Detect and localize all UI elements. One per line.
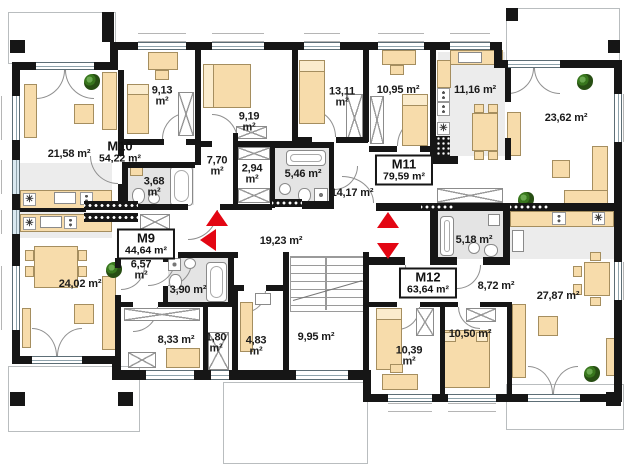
room-area-label: 14,17m² [331,187,374,199]
bathtub [286,150,326,166]
chair [573,266,582,277]
pillar [506,8,518,21]
room-area-label: 1,80m² [206,333,227,354]
wardrobe [416,308,434,336]
wall [115,258,121,268]
wardrobe [466,308,496,322]
balcony-top-left [8,12,116,64]
door-arc [528,366,553,394]
chair [488,151,498,160]
wall [201,141,212,147]
window [388,394,432,402]
coffee-table [552,160,570,178]
sink-icon [54,192,76,204]
wall [363,42,369,142]
door-arc [36,70,65,99]
terrace-door-m12 [528,394,580,402]
window-sill [623,94,634,142]
room-area-label: 6,57m² [131,260,152,281]
chair [474,104,484,113]
apartment-area: 63,64 m² [407,285,449,296]
wall [363,252,369,370]
entrance-glazed-door [296,370,348,380]
wardrobe [124,308,200,321]
apartment-label-m9: M9 44,64 m² [117,229,175,260]
wardrobe [128,352,156,368]
wall [121,302,133,307]
desk [148,52,178,70]
pillar [608,40,620,53]
window-sill [388,403,432,412]
kitchen-counter [437,60,451,88]
wall [369,146,397,152]
room-area-label: 5,18m² [456,234,493,246]
wall [138,204,188,210]
apartment-area: 54,22 m² [99,154,141,165]
window [146,370,194,380]
wall [302,201,334,209]
wall [430,156,458,164]
terrace-top-right [506,8,620,62]
window [614,94,622,142]
wardrobe [370,96,384,144]
door-arc [508,68,534,94]
pillar [10,392,25,406]
chair [25,250,34,261]
room-area-label: 5,46m² [285,168,322,180]
window [614,262,622,300]
window-sill [378,33,424,42]
stove-icon: ✳ [23,217,36,230]
window [211,370,229,380]
entrance-porch [223,382,368,464]
apartment-label-m12: M12 63,64 m² [399,268,457,299]
wardrobe [178,92,194,136]
sink-icon [512,230,524,252]
pillow [127,84,149,95]
apartment-label-m11: M11 79,59 m² [375,155,433,186]
plant-icon [84,74,100,90]
floor-plan: ✳ ✳ ✳ [0,0,634,473]
glass-block-wall [421,203,453,211]
window [212,42,264,50]
window-sill [138,33,186,42]
wall [208,302,234,307]
room-area-label: 21,58m² [48,148,91,160]
chair [474,151,484,160]
door-arc [32,328,57,356]
utility-box [255,293,271,305]
apartment-id: M10 [99,140,141,154]
pillar [10,40,25,53]
stove-icon: ✳ [437,122,450,135]
wall [232,285,238,370]
pillow [376,308,402,320]
apartment-id: M12 [407,271,449,285]
bathtub [170,166,193,206]
bathtub [440,216,454,256]
room-area-label: 3,90m² [170,284,207,296]
chair [155,70,169,80]
glass-block-wall [272,199,302,207]
entrance-arrow-icon-up [206,210,228,226]
apartment-area: 44,64 m² [125,246,167,257]
entrance-arrow-icon-down [377,243,399,259]
window [12,160,20,194]
chair [590,252,601,261]
chair [590,297,601,306]
room-area-label: 23,62m² [545,112,588,124]
sofa [512,304,526,378]
window [12,266,20,330]
sink-icon [40,216,62,228]
entrance-arrow-icon-up [377,212,399,228]
window [12,210,20,234]
window [448,394,496,402]
door-arc [553,366,578,394]
room-area-label: 9,95m² [298,331,335,343]
wardrobe [238,188,270,203]
chair [78,250,87,261]
room-area-label: 13,11m² [329,87,355,108]
wall [430,42,436,156]
window [304,42,340,50]
burner-icon [64,216,77,229]
room-area-label: 19,23m² [260,235,303,247]
window [378,42,424,50]
burner-icon [552,212,566,225]
room-area-label: 10,95m² [377,84,420,96]
room-area-label: 2,94m² [242,164,263,185]
chair [78,266,87,277]
sofa [102,72,117,130]
wall [195,139,201,165]
pillar [102,12,114,42]
wall [292,42,298,145]
washing-machine [314,188,328,202]
pillow [203,64,214,108]
room-area-label: 7,70m² [207,156,228,177]
room-area-label: 27,87m² [537,290,580,302]
room-area-label: 10,39m² [396,346,423,367]
bathtub [206,262,227,302]
dining-table [472,113,498,151]
washing-machine [168,258,181,271]
wall [369,302,397,307]
pillow [299,60,325,72]
wall [115,295,121,375]
coffee-table [74,104,94,124]
cabinet [24,84,37,138]
wall [503,211,510,265]
wall [437,257,457,265]
window [138,42,186,50]
apartment-id: M9 [125,232,167,246]
room-area-label: 9,13m² [152,86,173,107]
apartment-id: M11 [383,158,425,172]
washbasin [184,258,196,269]
pillar [118,392,133,406]
washbasin [279,183,291,195]
desk [166,348,200,368]
window-sill [623,262,634,300]
staircase-icon [290,256,365,312]
coffee-table [74,304,94,324]
room-area-label: 3,68m² [144,177,165,198]
stove-icon: ✳ [592,212,605,225]
window-sill [304,33,340,42]
room-area-label: 4,83m² [246,336,267,357]
room-area-label: 8,33m² [158,334,195,346]
fridge [436,136,450,156]
room-area-label: 8,72m² [478,280,515,292]
desk [382,374,418,390]
glass-block-wall [510,203,550,211]
apartment-label-m10: M10 54,22 m² [99,140,141,165]
dining-table [584,262,610,296]
glass-block-wall [84,201,138,210]
stair-stringer [325,256,327,310]
wall [440,302,445,394]
window [450,42,490,50]
door-arc [534,68,560,94]
terrace-door-m11 [508,60,560,68]
wall [505,138,511,160]
wall [550,203,614,211]
wall [233,133,238,210]
wall [453,203,510,211]
utility-box [488,214,500,226]
room-area-label: 11,16m² [454,84,496,96]
balcony-door-m10 [36,62,94,70]
window-sill [212,33,264,42]
wardrobe [238,147,270,160]
desk [382,50,416,65]
wardrobe [437,188,503,203]
chair [488,104,498,113]
terrace-door-m9 [32,356,82,364]
room-area-label: 24,02m² [59,278,102,290]
door-arc [57,328,82,356]
entrance-arrow-icon-left [200,229,216,251]
chair [25,266,34,277]
window-sill [448,403,496,412]
room-area-label: 9,19m² [239,112,260,133]
wall [507,302,512,394]
wall [283,252,289,370]
glass-block-wall [84,213,138,222]
burner-icon [437,102,450,116]
window [12,96,20,140]
apartment-area: 79,59 m² [383,172,425,183]
wall [195,42,201,145]
plant-icon [584,366,600,382]
tv-cabinet [22,308,31,348]
wall [376,203,421,211]
plant-icon [577,74,593,90]
wall [420,302,442,307]
wall [20,208,86,212]
chair [390,65,404,75]
stove-icon: ✳ [23,193,36,206]
coffee-table [538,316,558,336]
room-area-label: 10,50m² [449,328,492,340]
burner-icon [437,88,450,102]
wall [298,137,312,143]
wall [505,62,511,102]
wall [158,302,203,307]
window-sill [450,33,490,42]
sofa [102,276,116,350]
sink-icon [458,52,482,63]
